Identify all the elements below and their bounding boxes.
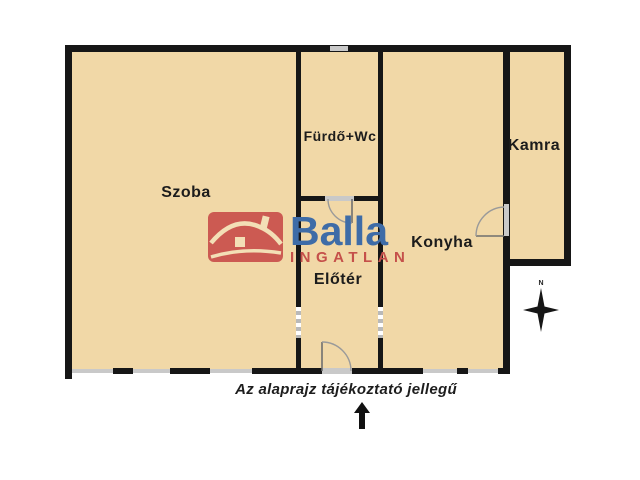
room-label-konyha: Konyha: [411, 234, 473, 252]
compass-star: [523, 288, 559, 332]
wall-bottom-segment: [170, 368, 210, 374]
wall-bottom-segment: [457, 368, 468, 374]
logo-brand: Balla: [290, 212, 410, 250]
wall-bottom-segment: [113, 368, 133, 374]
room-label-kamra: Kamra: [508, 137, 560, 155]
door-threshold: [322, 368, 352, 374]
orientation-arrow: [352, 402, 372, 429]
doorway-opening: [378, 307, 383, 338]
floor-main: [68, 48, 507, 371]
wall-left: [65, 45, 72, 379]
floorplan: Szoba Fürdő+Wc Kamra Konyha Előtér Balla…: [0, 0, 640, 480]
wall-bottom-segment: [498, 368, 510, 374]
compass-rose: N: [518, 276, 564, 334]
wall-kamra-bottom: [503, 259, 571, 266]
north-label: N: [538, 280, 543, 287]
wall-bottom-segment: [252, 368, 322, 374]
window: [423, 369, 457, 373]
watermark-logo: Balla INGATLAN: [208, 212, 410, 265]
logo-subtitle: INGATLAN: [290, 250, 410, 265]
door-threshold: [504, 204, 509, 236]
wall-top: [65, 45, 571, 52]
disclaimer-text: Az alaprajz tájékoztató jellegű: [176, 381, 516, 398]
doorway-opening: [296, 307, 301, 338]
room-label-eloter: Előtér: [314, 271, 362, 289]
house-icon: [208, 212, 283, 262]
window: [210, 369, 252, 373]
room-label-szoba: Szoba: [161, 184, 211, 202]
wall-bottom-segment: [352, 368, 423, 374]
window: [468, 369, 498, 373]
wall-right-kamra: [564, 45, 571, 266]
room-label-furdo: Fürdő+Wc: [304, 128, 377, 144]
window: [330, 46, 348, 51]
window: [133, 369, 170, 373]
floor-kamra: [507, 48, 566, 262]
window: [72, 369, 113, 373]
door-threshold: [325, 196, 354, 201]
logo-text: Balla INGATLAN: [290, 212, 410, 265]
